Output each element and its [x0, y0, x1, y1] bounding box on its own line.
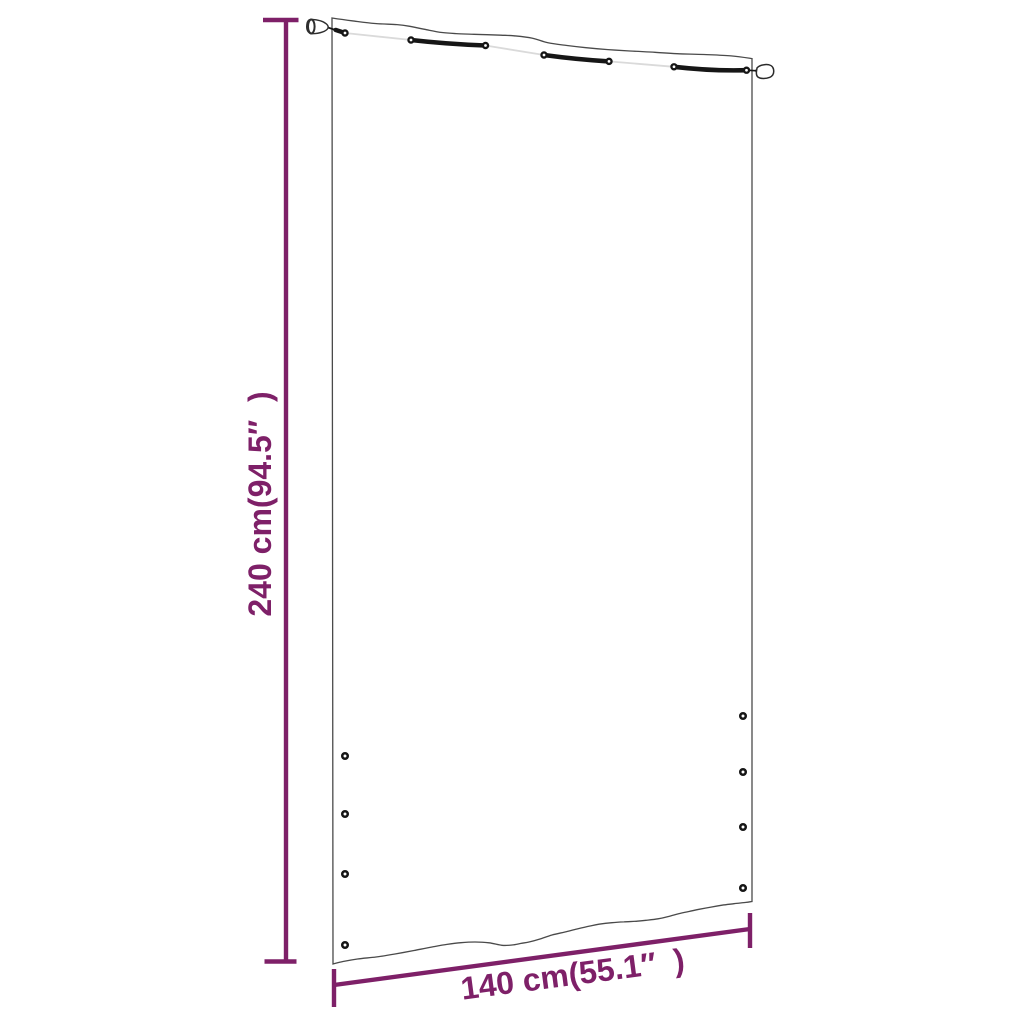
svg-text:240 cm(94.5″ ): 240 cm(94.5″ ): [242, 391, 278, 616]
